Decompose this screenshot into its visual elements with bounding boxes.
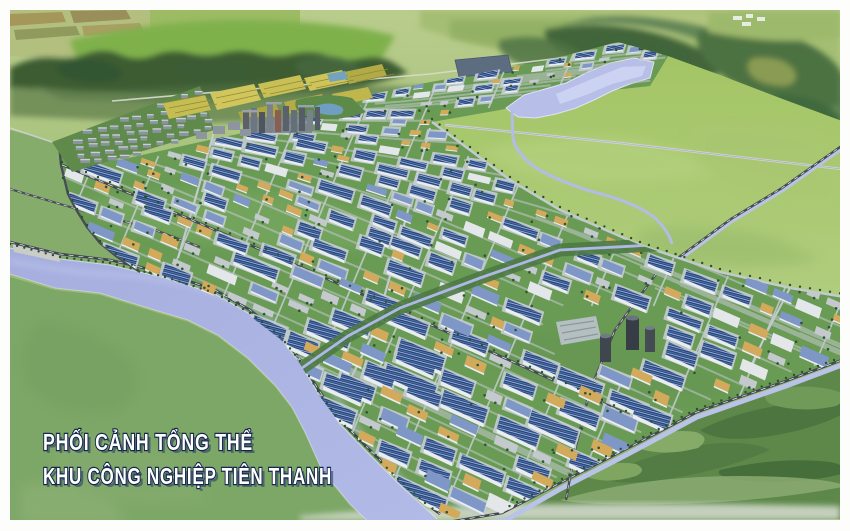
svg-text:PHỐI CẢNH TỔNG THỂ: PHỐI CẢNH TỔNG THỂ xyxy=(43,427,253,455)
svg-text:KHU CÔNG NGHIỆP TIÊN THANH: KHU CÔNG NGHIỆP TIÊN THANH xyxy=(43,462,332,489)
